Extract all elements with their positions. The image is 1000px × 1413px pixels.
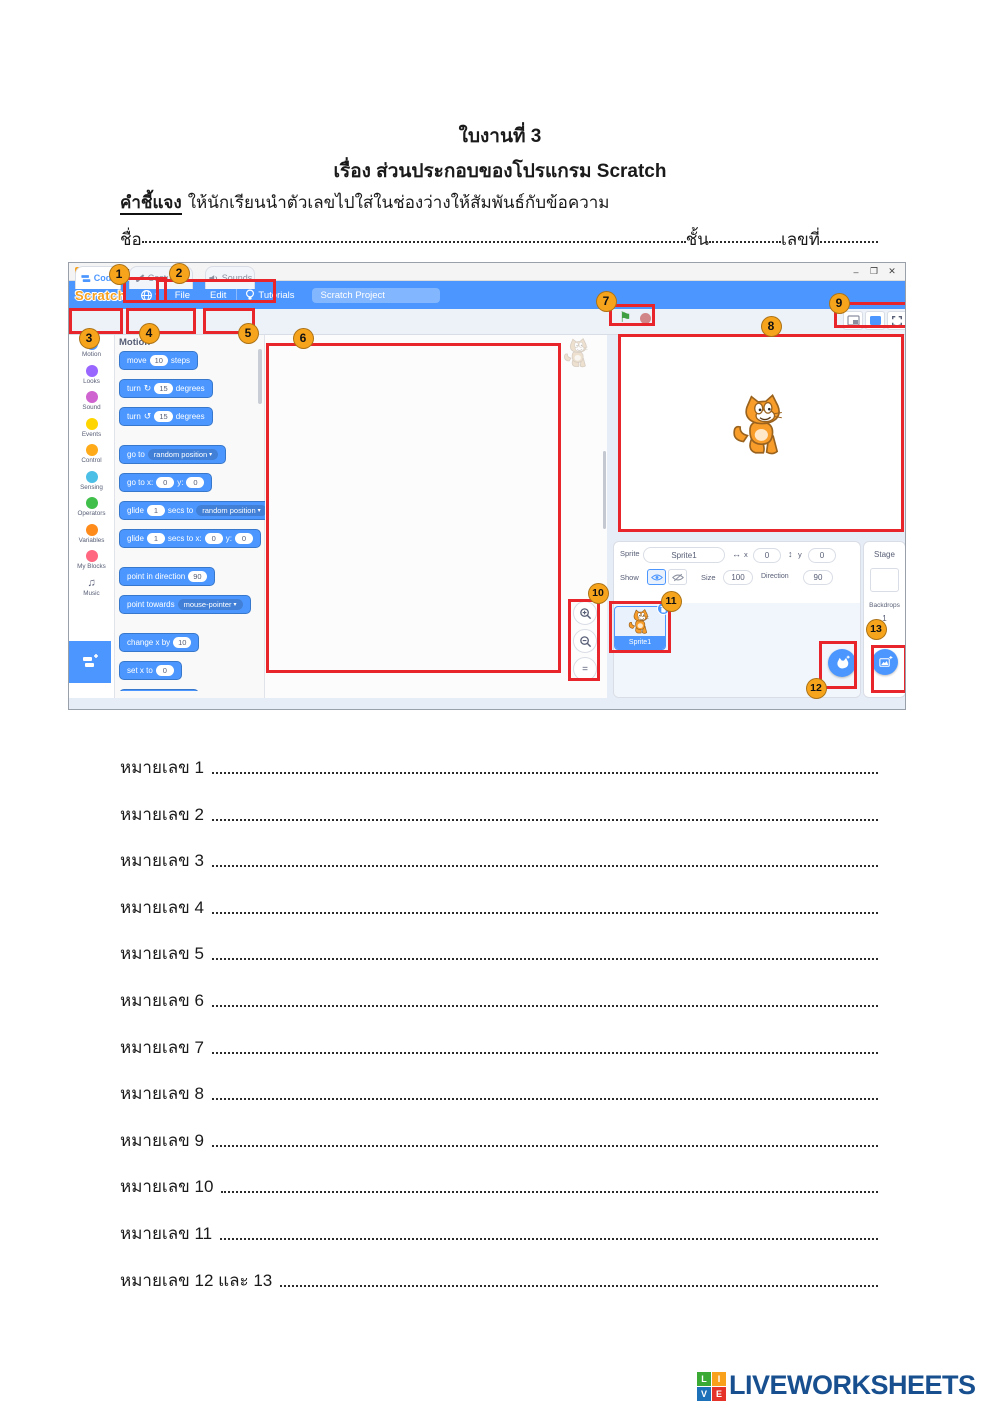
sprite-label: Sprite	[620, 549, 640, 558]
block-number-input[interactable]: 1	[147, 505, 165, 516]
category-label: Events	[82, 431, 101, 438]
answer-label: หมายเลข 11	[120, 1223, 212, 1244]
palette-block[interactable]: change x by10	[119, 633, 199, 652]
block-number-input[interactable]: 15	[154, 411, 172, 422]
liveworksheets-brand: LIVEWORKSHEETS	[729, 1370, 976, 1400]
block-text: change x by	[127, 638, 170, 647]
caret-down-icon: ▾	[209, 451, 212, 458]
liveworksheets-footer: LIVE LIVEWORKSHEETS	[697, 1370, 976, 1401]
block-text: point in direction	[127, 572, 185, 581]
answer-blank[interactable]	[212, 1037, 878, 1054]
category-music[interactable]: ♫Music	[69, 574, 114, 601]
answer-row-4: หมายเลข 4	[120, 897, 878, 944]
annotation-badge-8: 8	[761, 316, 782, 337]
block-number-input[interactable]: 0	[235, 533, 253, 544]
minimize-button[interactable]: –	[847, 267, 865, 277]
block-number-input[interactable]: 10	[150, 355, 168, 366]
answer-label: หมายเลข 3	[120, 850, 204, 871]
palette-block[interactable]: glide1secs to x:0y:0	[119, 529, 261, 548]
block-text: glide	[127, 506, 144, 515]
block-number-input[interactable]: 0	[186, 477, 204, 488]
block-dropdown[interactable]: random position▾	[196, 505, 265, 516]
category-label: Sound	[82, 404, 100, 411]
block-text: steps	[171, 356, 190, 365]
x-position-icon: ↔	[732, 549, 741, 559]
turn-icon: ↺	[144, 411, 152, 422]
instruction-line: คำชี้แจงให้นักเรียนนำตัวเลขไปใส่ในช่องว่…	[120, 189, 610, 216]
annotation-badge-4: 4	[139, 323, 160, 344]
add-sprite-button[interactable]	[828, 649, 856, 677]
answer-blank[interactable]	[280, 1270, 878, 1287]
category-looks[interactable]: Looks	[69, 362, 114, 389]
block-dropdown[interactable]: mouse-pointer▾	[178, 599, 243, 610]
annotation-badge-1: 1	[109, 264, 130, 285]
y-position-icon: ↕	[788, 549, 793, 559]
scratch-window: Scratch 3.19.1 – ❐ ✕ Scratch ▾ File Edit…	[68, 262, 906, 710]
size-label: Size	[701, 573, 716, 582]
backdrops-label: Backdrops	[864, 602, 905, 609]
name-class-line: ชื่อ ชั้น เลขที่	[120, 226, 878, 253]
block-text: secs to	[168, 506, 193, 515]
category-control[interactable]: Control	[69, 441, 114, 468]
project-name-field[interactable]: Scratch Project	[312, 288, 440, 303]
annotation-badge-12: 12	[806, 678, 827, 699]
sprite-thumbnail[interactable]: Sprite1	[614, 606, 666, 650]
close-button[interactable]: ✕	[883, 266, 901, 277]
answer-row-6: หมายเลข 6	[120, 990, 878, 1037]
block-text: degrees	[176, 384, 205, 393]
category-events[interactable]: Events	[69, 415, 114, 442]
small-stage-button[interactable]	[843, 311, 863, 330]
category-my-blocks[interactable]: My Blocks	[69, 547, 114, 574]
category-color-dot	[86, 444, 98, 456]
show-hidden-button[interactable]	[668, 569, 687, 585]
answer-label: หมายเลข 5	[120, 943, 204, 964]
answer-blank[interactable]	[212, 943, 878, 960]
annotation-badge-6: 6	[293, 328, 314, 349]
answer-blank[interactable]	[212, 897, 878, 914]
answer-label: หมายเลข 4	[120, 897, 204, 918]
class-blank[interactable]	[709, 226, 781, 243]
answer-label: หมายเลข 1	[120, 757, 204, 778]
stage-pane-title: Stage	[864, 550, 905, 559]
category-label: Control	[81, 457, 101, 464]
y-label: y	[798, 550, 802, 559]
block-number-input[interactable]: 0	[156, 477, 174, 488]
brush-icon	[134, 273, 145, 284]
code-scrollbar[interactable]	[603, 451, 606, 529]
palette-block[interactable]: change y by10	[119, 689, 199, 691]
block-text: turn	[127, 384, 141, 393]
answer-blank[interactable]	[220, 1223, 878, 1240]
answer-label: หมายเลข 8	[120, 1083, 204, 1104]
speaker-icon	[208, 273, 219, 284]
palette-block[interactable]: point towardsmouse-pointer▾	[119, 595, 251, 614]
sprite-thumbnail-name: Sprite1	[615, 636, 665, 649]
instruction-label: คำชี้แจง	[120, 193, 182, 215]
category-color-dot	[86, 550, 98, 562]
annotation-badge-11: 11	[661, 591, 682, 612]
name-blank[interactable]	[142, 226, 686, 243]
size-value-field[interactable]: 100	[723, 570, 753, 585]
add-backdrop-icon	[878, 655, 893, 670]
caret-down-icon: ▾	[258, 507, 261, 514]
zoom-out-icon	[579, 635, 592, 648]
palette-block[interactable]: go to x:0y:0	[119, 473, 212, 492]
block-text: go to x:	[127, 478, 153, 487]
answer-row-1: หมายเลข 1	[120, 757, 878, 804]
palette-scrollbar[interactable]	[258, 349, 262, 404]
category-label: My Blocks	[77, 563, 106, 570]
eye-slash-icon	[672, 573, 684, 582]
show-label: Show	[620, 573, 639, 582]
category-color-dot	[86, 391, 98, 403]
code-workspace[interactable]	[265, 335, 607, 698]
category-label: Motion	[82, 351, 101, 358]
green-flag-button[interactable]: ⚑	[619, 309, 632, 326]
annotation-badge-10: 10	[588, 583, 609, 604]
block-text: point towards	[127, 600, 175, 609]
palette-block[interactable]: go torandom position▾	[119, 445, 226, 464]
add-sprite-cat-icon	[834, 655, 851, 672]
block-text: glide	[127, 534, 144, 543]
stop-button[interactable]	[640, 313, 651, 324]
scratch-logo[interactable]: Scratch	[75, 288, 126, 303]
block-list: move10stepsturn↻15degreesturn↺15degreesg…	[119, 351, 265, 691]
block-text: secs to x:	[168, 534, 202, 543]
block-number-input[interactable]: 0	[156, 665, 174, 676]
restore-button[interactable]: ❐	[865, 266, 883, 277]
caret-down-icon: ▾	[155, 291, 159, 299]
block-number-input[interactable]: 1	[147, 533, 165, 544]
show-visible-button[interactable]	[647, 569, 666, 585]
logo-square-e: E	[712, 1387, 726, 1401]
answer-blank[interactable]	[212, 850, 878, 867]
block-text: y:	[226, 534, 232, 543]
turn-icon: ↻	[144, 383, 152, 394]
category-sensing[interactable]: Sensing	[69, 468, 114, 495]
category-color-dot	[86, 418, 98, 430]
answer-row-7: หมายเลข 7	[120, 1037, 878, 1084]
answer-blank[interactable]	[212, 757, 878, 774]
answer-row-10: หมายเลข 10	[120, 1176, 878, 1223]
answer-label: หมายเลข 9	[120, 1130, 204, 1151]
globe-icon	[140, 289, 153, 302]
worksheet-subtitle: เรื่อง ส่วนประกอบของโปรแกรม Scratch	[0, 156, 1000, 186]
direction-label: Direction	[761, 573, 789, 580]
worksheet-title: ใบงานที่ 3	[0, 121, 1000, 151]
answer-blank[interactable]	[212, 1130, 878, 1147]
block-text: move	[127, 356, 147, 365]
logo-square-v: V	[697, 1387, 711, 1401]
sprite-thumbnail-cat-icon	[627, 609, 654, 636]
large-stage-icon	[869, 315, 882, 326]
sprite-watermark-icon	[562, 337, 594, 371]
block-number-input[interactable]: 90	[188, 571, 206, 582]
category-sound[interactable]: Sound	[69, 388, 114, 415]
category-label: Looks	[83, 378, 100, 385]
palette-block[interactable]: point in direction90	[119, 567, 215, 586]
caret-down-icon: ▾	[234, 601, 237, 608]
block-text: turn	[127, 412, 141, 421]
answer-blank[interactable]	[212, 1083, 878, 1100]
answer-label: หมายเลข 2	[120, 804, 204, 825]
annotation-badge-2: 2	[169, 263, 190, 284]
answer-row-11: หมายเลข 11	[120, 1223, 878, 1270]
answer-row-3: หมายเลข 3	[120, 850, 878, 897]
palette-block[interactable]: set x to0	[119, 661, 182, 680]
logo-square-l: L	[697, 1372, 711, 1386]
annotation-badge-13: 13	[866, 619, 887, 640]
instruction-text: ให้นักเรียนนำตัวเลขไปใส่ในช่องว่างให้สัม…	[188, 193, 610, 212]
category-color-dot	[86, 365, 98, 377]
category-color-dot	[86, 471, 98, 483]
window-titlebar: Scratch 3.19.1 – ❐ ✕	[69, 263, 906, 281]
large-stage-button[interactable]	[865, 311, 885, 330]
zoom-out-button[interactable]	[573, 629, 597, 653]
answer-row-8: หมายเลข 8	[120, 1083, 878, 1130]
answer-row-9: หมายเลข 9	[120, 1130, 878, 1177]
answer-row-12: หมายเลข 12 และ 13	[120, 1270, 878, 1317]
tab-sounds[interactable]: Sounds	[205, 266, 255, 289]
block-number-input[interactable]: 10	[173, 637, 191, 648]
answer-label: หมายเลข 7	[120, 1037, 204, 1058]
answer-blank[interactable]	[212, 804, 878, 821]
category-label: Music	[83, 590, 99, 597]
x-value-field[interactable]: 0	[753, 548, 781, 563]
annotation-badge-3: 3	[79, 328, 100, 349]
menu-bar: Scratch ▾ File Edit Tutorials Scratch Pr…	[69, 281, 906, 309]
category-label: Operators	[78, 510, 106, 517]
palette-block[interactable]: move10steps	[119, 351, 198, 370]
palette-block[interactable]: turn↺15degrees	[119, 407, 213, 426]
category-color-dot	[86, 524, 98, 536]
block-number-input[interactable]: 0	[205, 533, 223, 544]
number-label: เลขที่	[781, 226, 820, 253]
x-label: x	[744, 550, 748, 559]
block-text: y:	[177, 478, 183, 487]
code-blocks-icon	[80, 273, 91, 284]
logo-square-i: I	[712, 1372, 726, 1386]
menu-tutorials[interactable]: Tutorials	[237, 289, 302, 301]
palette-block[interactable]: glide1secs torandom position▾	[119, 501, 265, 520]
fullscreen-icon	[891, 315, 903, 327]
menu-edit[interactable]: Edit	[200, 290, 236, 301]
category-operators[interactable]: Operators	[69, 494, 114, 521]
sprite-name-input[interactable]	[643, 547, 725, 563]
answer-section: หมายเลข 1หมายเลข 2หมายเลข 3หมายเลข 4หมาย…	[120, 757, 878, 1316]
annotation-badge-7: 7	[596, 291, 617, 312]
y-value-field[interactable]: 0	[808, 548, 836, 563]
block-number-input[interactable]: 15	[154, 383, 172, 394]
name-label: ชื่อ	[120, 226, 142, 253]
answer-row-2: หมายเลข 2	[120, 804, 878, 851]
zoom-in-icon	[579, 607, 592, 620]
add-extension-icon	[81, 653, 99, 671]
fullscreen-button[interactable]	[887, 311, 906, 330]
block-text: go to	[127, 450, 145, 459]
answer-blank[interactable]	[212, 990, 878, 1007]
eye-icon	[651, 573, 663, 582]
number-blank[interactable]	[820, 226, 878, 243]
block-text: degrees	[176, 412, 205, 421]
block-text: set x to	[127, 666, 153, 675]
annotation-badge-5: 5	[238, 323, 259, 344]
category-label: Sensing	[80, 484, 103, 491]
annotation-badge-9: 9	[829, 293, 850, 314]
scratch-cat-sprite[interactable]	[729, 394, 795, 460]
category-label: Variables	[79, 537, 105, 544]
class-label: ชั้น	[686, 226, 709, 253]
block-dropdown[interactable]: random position▾	[148, 449, 218, 460]
lightbulb-icon	[245, 289, 255, 301]
answer-label: หมายเลข 10	[120, 1176, 213, 1197]
add-backdrop-button[interactable]	[872, 649, 898, 675]
backdrop-thumbnail[interactable]	[870, 568, 899, 592]
answer-label: หมายเลข 12 และ 13	[120, 1270, 272, 1291]
category-color-dot	[86, 497, 98, 509]
small-stage-icon	[847, 315, 860, 326]
zoom-reset-button[interactable]: =	[573, 657, 597, 681]
answer-row-5: หมายเลข 5	[120, 943, 878, 990]
music-note-icon: ♫	[87, 577, 95, 589]
menu-file[interactable]: File	[165, 290, 200, 301]
answer-blank[interactable]	[221, 1176, 878, 1193]
category-variables[interactable]: Variables	[69, 521, 114, 548]
answer-label: หมายเลข 6	[120, 990, 204, 1011]
direction-value-field[interactable]: 90	[803, 570, 833, 585]
zoom-in-button[interactable]	[573, 601, 597, 625]
palette-block[interactable]: turn↻15degrees	[119, 379, 213, 398]
liveworksheets-logo-icon: LIVE	[697, 1372, 726, 1401]
add-extension-button[interactable]	[69, 641, 111, 683]
